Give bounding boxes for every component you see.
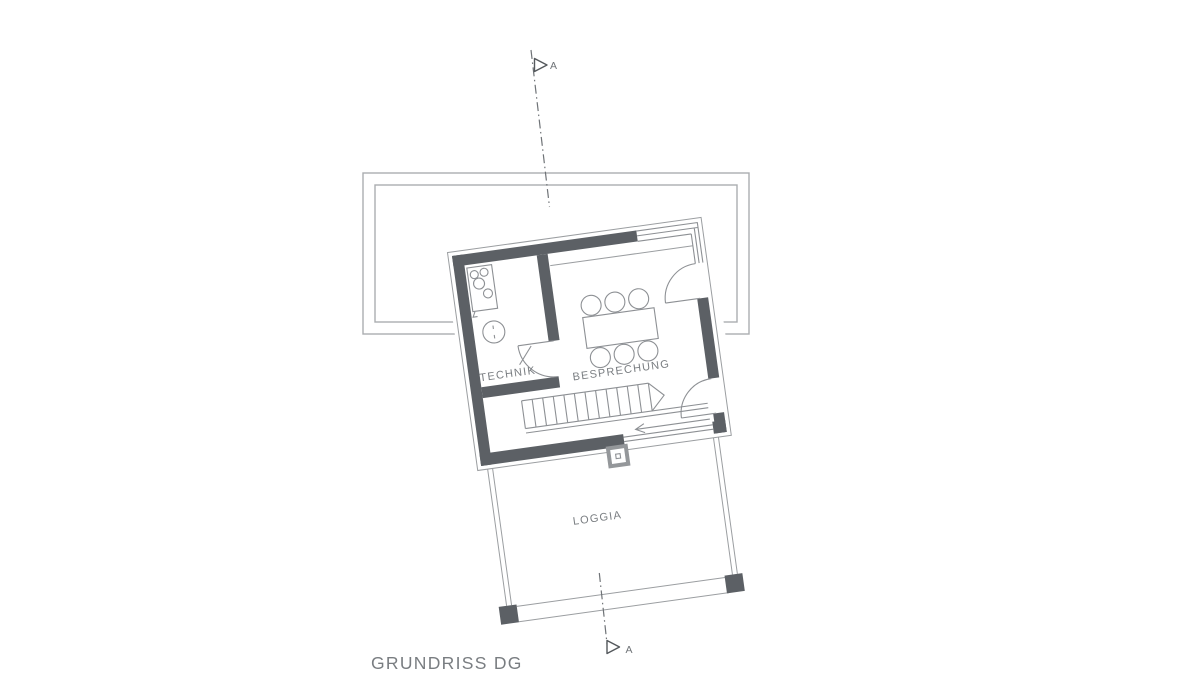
wall-south-east [712,420,727,434]
floor-plan-sheet: TECHNIK BESPRECHUNG LOGGIA A A GRUNDRISS… [0,0,1200,675]
section-marker-label-top: A [550,60,557,72]
drawing-title: GRUNDRISS DG [371,653,523,673]
floor-plan-canvas: TECHNIK BESPRECHUNG LOGGIA A A GRUNDRISS… [0,0,1200,675]
meeting-furniture [580,287,661,369]
sink-basin-lower [483,288,493,298]
loggia-post-left [499,604,519,624]
loggia-post-right [725,573,745,593]
section-marker-label-bottom: A [626,644,633,656]
building: TECHNIK BESPRECHUNG LOGGIA [443,212,762,635]
chimney [606,444,631,469]
chimney-inner [610,448,626,464]
sink-basin-small-right [480,268,489,277]
